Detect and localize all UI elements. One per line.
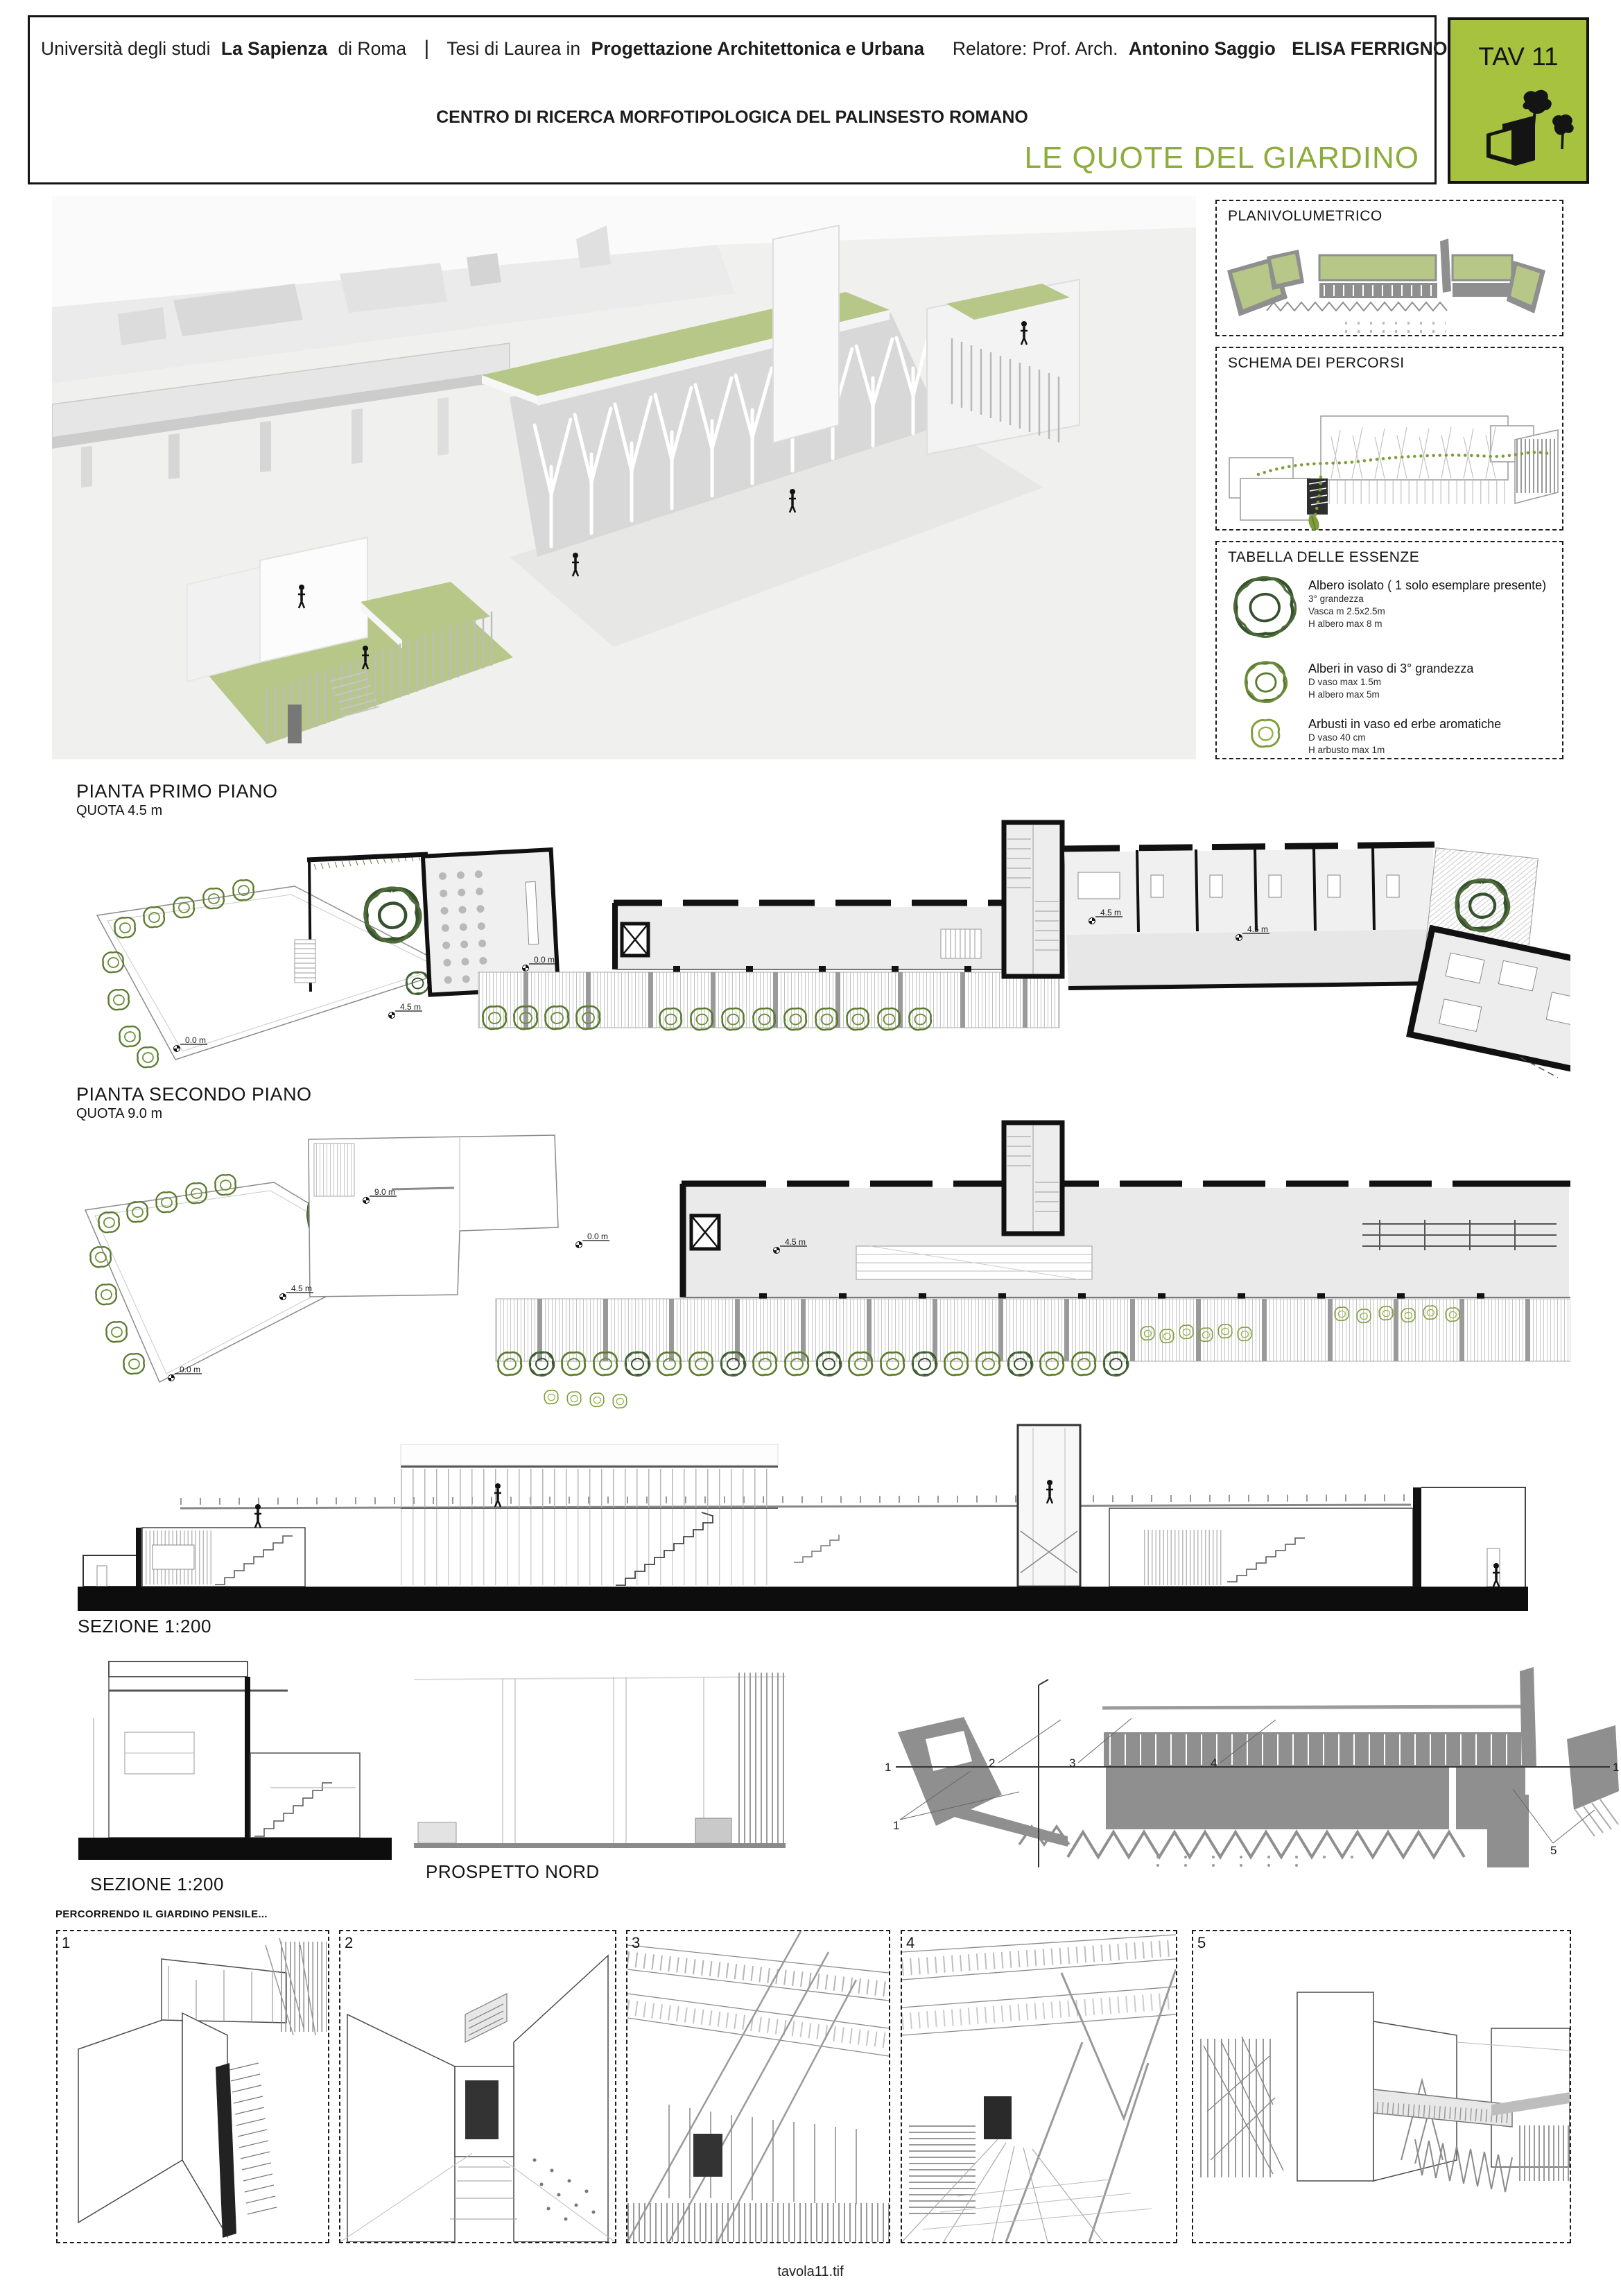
cube-tree-logo: [1471, 83, 1575, 176]
marker-text: 0.0 m: [180, 1365, 200, 1374]
schema-percorsi-drawing: [1217, 376, 1562, 530]
relatore-label: Relatore: Prof. Arch.: [953, 38, 1118, 59]
tree-icon-small: [1249, 717, 1282, 750]
strip-panel-1-drawing: [58, 1931, 328, 2242]
panel-planivolumetrico: PLANIVOLUMETRICO: [1215, 200, 1563, 336]
strip-panel-4-number: 4: [906, 1934, 914, 1952]
tav-box: TAV 11: [1448, 17, 1589, 184]
tree-icon-medium: [1242, 659, 1289, 706]
board-subtitle: CENTRO DI RICERCA MORFOTIPOLOGICA DEL PA…: [30, 107, 1434, 128]
marker-text: 4.5 m: [1247, 924, 1268, 934]
marker-text: 0.0 m: [534, 955, 555, 965]
elevator: [691, 1216, 719, 1249]
axon-label-3: 3: [1069, 1756, 1075, 1770]
strip-panel-2-number: 2: [345, 1934, 353, 1952]
essenza-1-line2: Vasca m 2.5x2.5m: [1308, 605, 1558, 618]
elevator: [622, 924, 648, 956]
small-section-drawing: [73, 1649, 399, 1864]
essenza-3-name: Arbusti in vaso ed erbe aromatiche: [1308, 717, 1558, 732]
axon-label-4: 4: [1211, 1756, 1217, 1770]
strip-panel-1-number: 1: [62, 1934, 70, 1952]
essenza-1-line1: 3° grandezza: [1308, 593, 1558, 605]
plan-second-title: PIANTA SECONDO PIANO: [76, 1084, 312, 1105]
planivolumetrico-drawing: [1217, 227, 1562, 335]
marker-text: 4.5 m: [291, 1284, 312, 1293]
university-name: La Sapienza: [221, 38, 327, 59]
panel-tabella-title: TABELLA DELLE ESSENZE: [1228, 549, 1419, 566]
long-section-drawing: [76, 1424, 1532, 1612]
tree-icon-large: [1229, 573, 1299, 642]
axon-label-2: 2: [989, 1756, 995, 1770]
essenza-1-name: Albero isolato ( 1 solo esemplare presen…: [1308, 578, 1558, 593]
right-wing: [1410, 929, 1570, 1075]
essenza-2-line2: H albero max 5m: [1308, 689, 1558, 701]
strip-panel-2: 2: [339, 1930, 616, 2243]
header-separator: |: [424, 37, 430, 60]
benches: [1362, 1220, 1557, 1250]
long-section-label: SEZIONE 1:200: [78, 1616, 211, 1637]
file-name-footer: tavola11.tif: [0, 2264, 1621, 2280]
main-render: [52, 196, 1196, 759]
strip-panel-1: 1: [56, 1930, 329, 2243]
axon-key-drawing: 1 1 1 2 3 4 5: [860, 1628, 1619, 1867]
university-text: Università degli studi: [41, 38, 211, 59]
stair-tower: [1004, 1123, 1062, 1234]
strip-caption: PERCORRENDO IL GIARDINO PENSILE...: [55, 1908, 268, 1920]
marker-text: 0.0 m: [185, 1035, 206, 1045]
prospetto-nord-drawing: [406, 1657, 794, 1858]
plan-first-quota: QUOTA 4.5 m: [76, 803, 162, 819]
marker-text: 4.5 m: [1100, 908, 1121, 917]
plan-first-title: PIANTA PRIMO PIANO: [76, 781, 278, 802]
strip-panel-5-number: 5: [1197, 1934, 1206, 1952]
essenza-1-line3: H albero max 8 m: [1308, 618, 1558, 630]
thesis-text: Tesi di Laurea in: [447, 38, 580, 59]
strip-panel-5-drawing: [1193, 1931, 1570, 2242]
board-title: LE QUOTE DEL GIARDINO: [1025, 141, 1419, 175]
axon-label-5: 5: [1550, 1844, 1557, 1857]
stair-tower: [1004, 822, 1062, 976]
panel-planivolumetrico-title: PLANIVOLUMETRICO: [1228, 208, 1382, 225]
human-figure: [1493, 1563, 1500, 1587]
panel-tabella-essenze: TABELLA DELLE ESSENZE Albero isolato ( 1…: [1215, 541, 1563, 759]
thesis-course: Progettazione Architettonica e Urbana: [591, 38, 925, 59]
strip-panel-3: 3: [626, 1930, 890, 2243]
strip-panel-4-drawing: [902, 1931, 1176, 2242]
essenza-3-line1: D vaso 40 cm: [1308, 732, 1558, 744]
strip-panel-5: 5: [1192, 1930, 1571, 2243]
essenza-3-line2: H arbusto max 1m: [1308, 744, 1558, 757]
plan-first-drawing: 0.0 m 4.5 m 0.0 m 4.5 m 4.5 m: [66, 818, 1570, 1078]
tav-label: TAV 11: [1450, 42, 1586, 71]
strip-panel-3-drawing: [627, 1931, 889, 2242]
strip-panel-2-drawing: [340, 1931, 615, 2242]
marker-text: 4.5 m: [400, 1002, 421, 1012]
university-city: di Roma: [338, 38, 406, 59]
essenza-2-line1: D vaso max 1.5m: [1308, 676, 1558, 689]
strip-panel-4: 4: [901, 1930, 1177, 2243]
human-figure: [254, 1504, 261, 1528]
axon-label-1: 1: [893, 1819, 899, 1832]
axon-cut-left: 1: [885, 1761, 891, 1774]
header-box: Università degli studi La Sapienza di Ro…: [28, 15, 1437, 184]
marker-text: 4.5 m: [785, 1237, 806, 1247]
relatore-name: Antonino Saggio: [1129, 38, 1276, 59]
strip-panel-3-number: 3: [632, 1934, 640, 1952]
small-section-label: SEZIONE 1:200: [90, 1874, 224, 1895]
prospetto-nord-label: PROSPETTO NORD: [426, 1861, 600, 1883]
plan-second-drawing: 9.0 m 4.5 m 0.0 m 0.0 m 4.5 m: [66, 1120, 1570, 1453]
essenza-2-name: Alberi in vaso di 3° grandezza: [1308, 662, 1558, 676]
panel-schema-percorsi: SCHEMA DEI PERCORSI: [1215, 347, 1563, 530]
header-line: Università degli studi La Sapienza di Ro…: [41, 37, 1447, 60]
marker-text: 0.0 m: [587, 1232, 608, 1241]
panel-schema-title: SCHEMA DEI PERCORSI: [1228, 355, 1405, 372]
presentation-board: Università degli studi La Sapienza di Ro…: [0, 0, 1621, 2296]
axon-cut-right: 1: [1613, 1761, 1619, 1774]
author-name: ELISA FERRIGNO: [1292, 38, 1447, 59]
marker-text: 9.0 m: [374, 1187, 395, 1197]
